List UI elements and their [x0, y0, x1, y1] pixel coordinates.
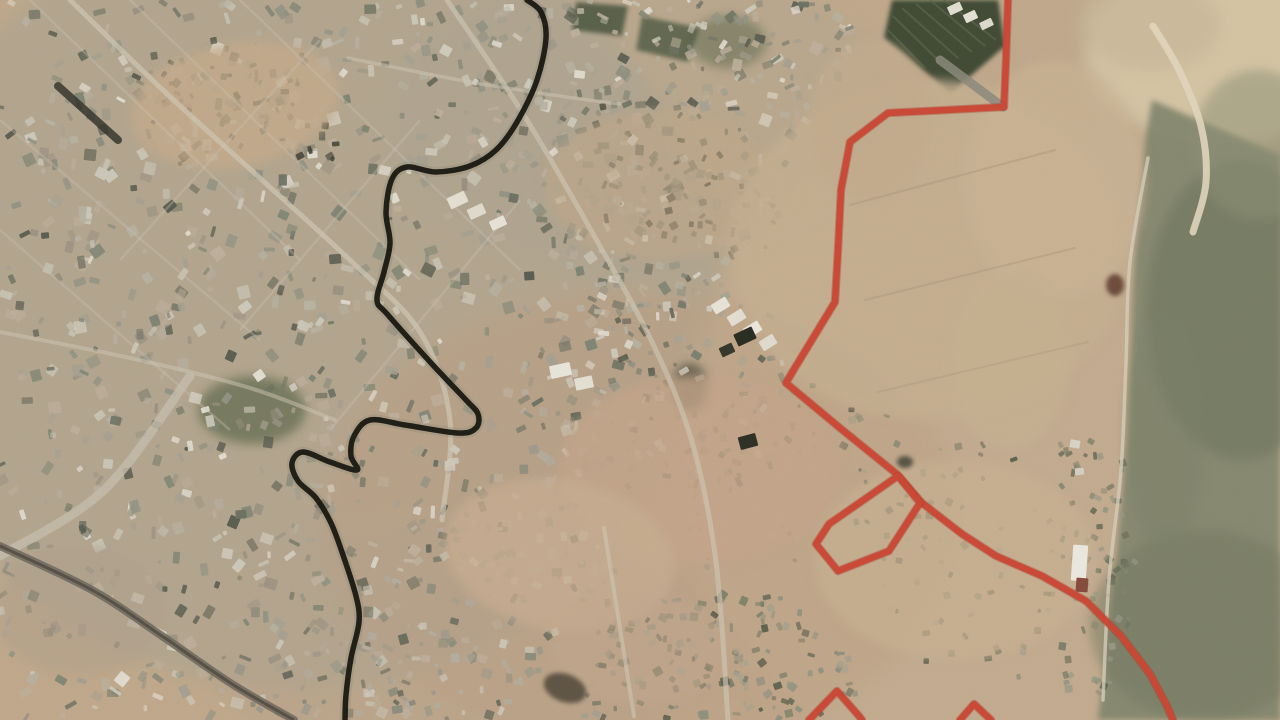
satellite-map-view[interactable]	[0, 0, 1280, 720]
photo-grain	[0, 0, 1280, 720]
map-canvas	[0, 0, 1280, 720]
